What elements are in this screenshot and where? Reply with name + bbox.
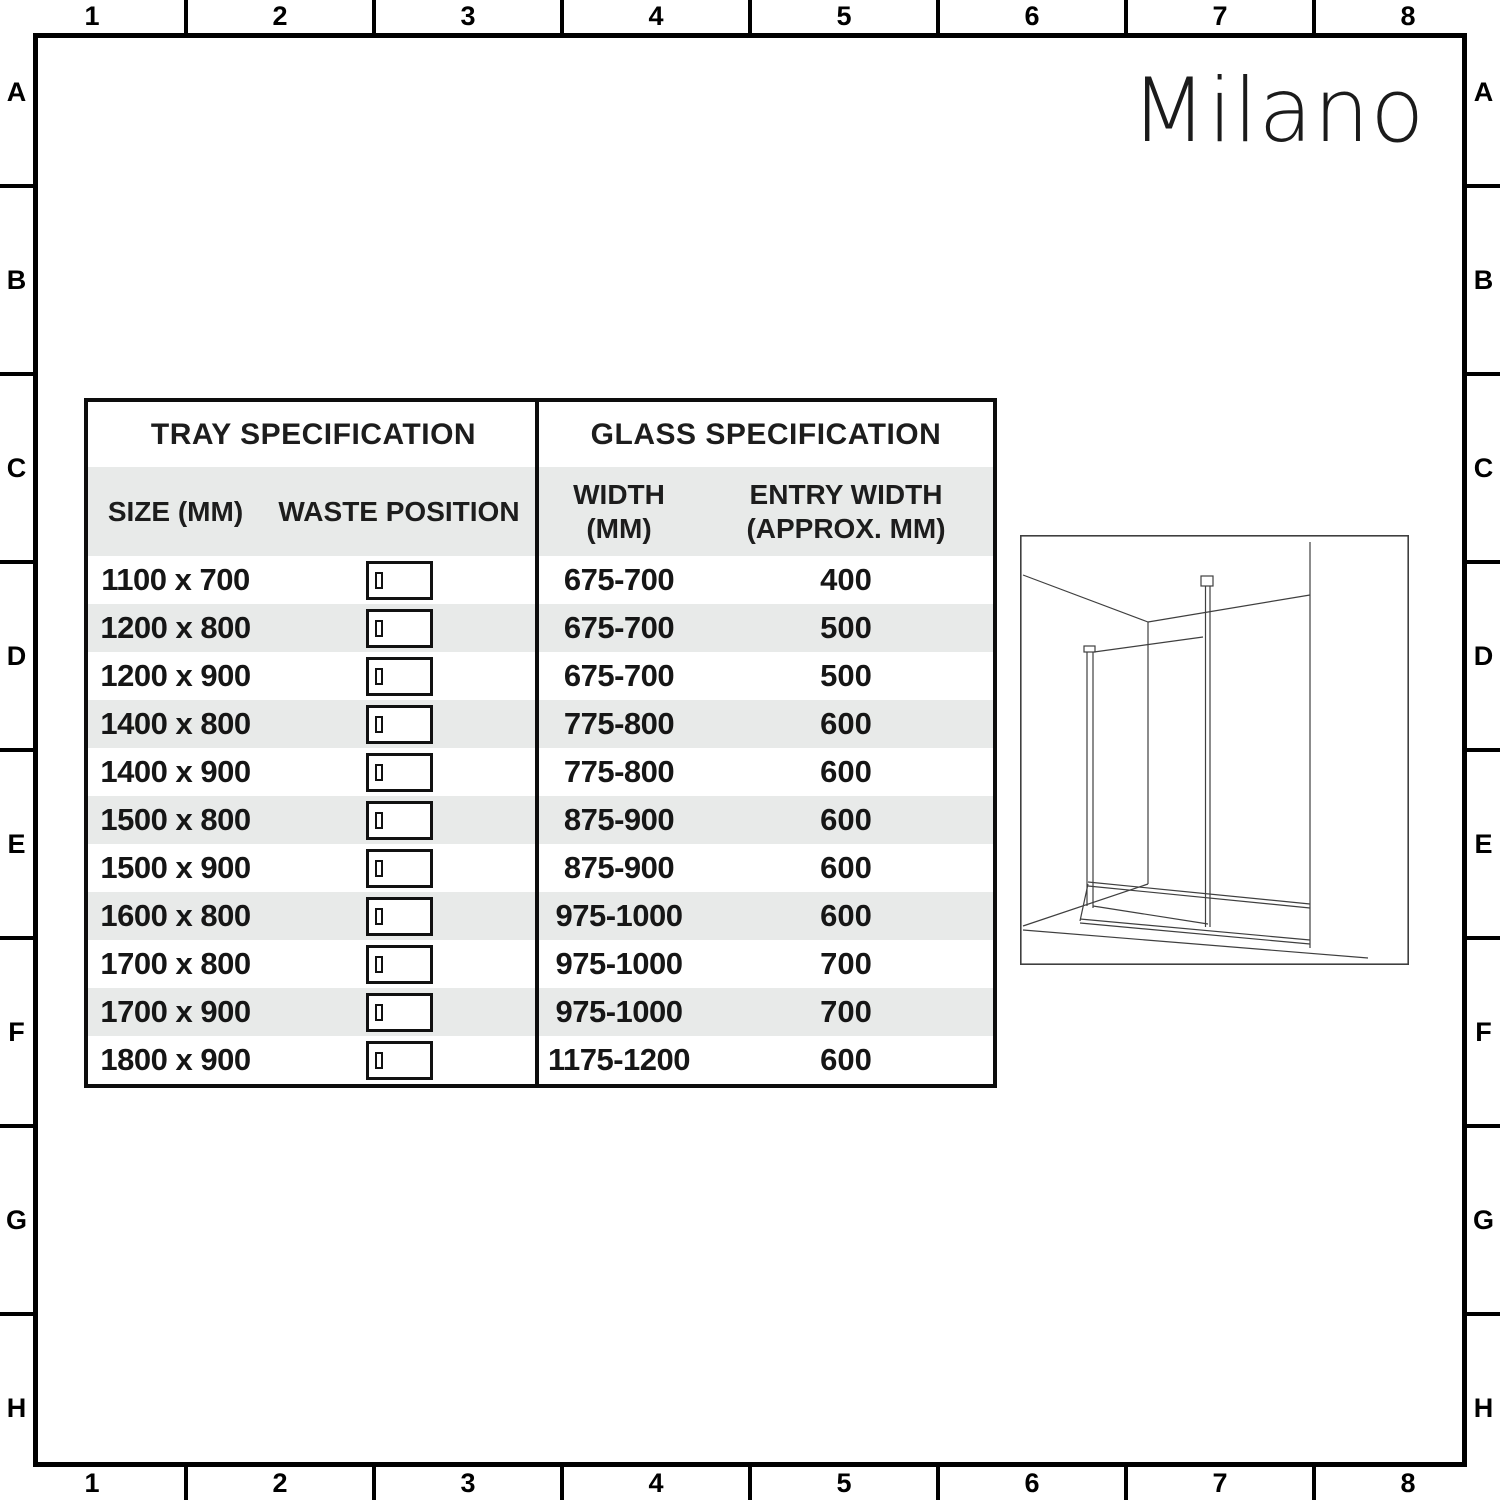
tray-size: 1500 x 900 [88, 850, 263, 886]
glass-width: 1175-1200 [539, 1042, 699, 1078]
waste-outlet-mark [375, 1004, 383, 1021]
entry-width-column-header: ENTRY WIDTH (APPROX. MM) [699, 467, 993, 556]
tray-size: 1800 x 900 [88, 1042, 263, 1078]
entry-width: 500 [699, 658, 993, 694]
grid-col-label: 2 [188, 1467, 376, 1500]
spec-sheet: 1 2 3 4 5 6 7 8 1 2 3 4 5 6 7 8 A B C D … [0, 0, 1500, 1500]
waste-outlet-mark [375, 620, 383, 637]
grid-ruler-left: A B C D E F G H [0, 0, 33, 1500]
entry-width: 600 [699, 802, 993, 838]
waste-outlet-mark [375, 764, 383, 781]
glass-frame-cap [1084, 646, 1095, 652]
table-divider [535, 402, 539, 1084]
table-row: 1400 x 900 775-800 600 [88, 748, 993, 796]
grid-row-label: C [1467, 376, 1500, 564]
glass-spec-title: GLASS SPECIFICATION [539, 402, 993, 467]
grid-col-label: 2 [188, 0, 376, 33]
table-row: 1700 x 800 975-1000 700 [88, 940, 993, 988]
table-row: 1200 x 900 675-700 500 [88, 652, 993, 700]
grid-col-label: 6 [940, 1467, 1128, 1500]
glass-width: 975-1000 [539, 946, 699, 982]
glass-width: 975-1000 [539, 898, 699, 934]
tray-top-front [1088, 886, 1310, 908]
table-row: 1600 x 800 975-1000 600 [88, 892, 993, 940]
waste-outlet-mark [375, 572, 383, 589]
glass-width: 875-900 [539, 802, 699, 838]
grid-row-label: E [0, 752, 33, 940]
support-bar-cap [1201, 576, 1213, 586]
glass-width: 975-1000 [539, 994, 699, 1030]
tray-size: 1500 x 800 [88, 802, 263, 838]
grid-col-label: 7 [1128, 1467, 1316, 1500]
entry-width: 700 [699, 994, 993, 1030]
entry-width: 600 [699, 1042, 993, 1078]
tray-size: 1600 x 800 [88, 898, 263, 934]
grid-col-label: 6 [940, 0, 1128, 33]
waste-position-icon [366, 705, 433, 744]
tray-size: 1700 x 900 [88, 994, 263, 1030]
waste-position-icon [366, 753, 433, 792]
waste-position-icon [366, 993, 433, 1032]
table-row: 1400 x 800 775-800 600 [88, 700, 993, 748]
grid-col-label: 7 [1128, 0, 1316, 33]
grid-row-label: C [0, 376, 33, 564]
glass-width: 675-700 [539, 562, 699, 598]
tray-size: 1400 x 900 [88, 754, 263, 790]
grid-col-label: 4 [564, 1467, 752, 1500]
tray-size: 1200 x 800 [88, 610, 263, 646]
grid-ruler-top: 1 2 3 4 5 6 7 8 [0, 0, 1500, 33]
floor-edge-front [1023, 930, 1368, 958]
waste-outlet-mark [375, 812, 383, 829]
grid-col-label: 5 [752, 0, 940, 33]
grid-row-label: G [0, 1128, 33, 1316]
entry-width: 400 [699, 562, 993, 598]
grid-col-label: 3 [376, 1467, 564, 1500]
glass-width: 875-900 [539, 850, 699, 886]
entry-width: 600 [699, 898, 993, 934]
entry-width: 600 [699, 850, 993, 886]
tray-front-bottom [1080, 923, 1310, 944]
tray-size: 1200 x 900 [88, 658, 263, 694]
tray-size: 1100 x 700 [88, 562, 263, 598]
grid-row-label: D [1467, 564, 1500, 752]
waste-outlet-mark [375, 956, 383, 973]
waste-outlet-mark [375, 860, 383, 877]
waste-position-icon [366, 945, 433, 984]
table-row: 1100 x 700 675-700 400 [88, 556, 993, 604]
ceiling-edge-left [1023, 575, 1148, 622]
entry-width: 600 [699, 754, 993, 790]
waste-outlet-mark [375, 1052, 383, 1069]
grid-row-label: A [1467, 0, 1500, 188]
entry-width: 600 [699, 706, 993, 742]
width-column-header: WIDTH (MM) [539, 467, 699, 556]
grid-row-label: A [0, 0, 33, 188]
entry-width: 500 [699, 610, 993, 646]
waste-outlet-mark [375, 908, 383, 925]
tray-spec-title: TRAY SPECIFICATION [88, 402, 539, 467]
grid-col-label: 4 [564, 0, 752, 33]
grid-row-label: H [1467, 1316, 1500, 1500]
table-row: 1800 x 900 1175-1200 600 [88, 1036, 993, 1084]
tray-size: 1700 x 800 [88, 946, 263, 982]
glass-width: 775-800 [539, 706, 699, 742]
waste-outlet-mark [375, 668, 383, 685]
waste-outlet-mark [375, 716, 383, 733]
waste-position-icon [366, 849, 433, 888]
table-row: 1500 x 800 875-900 600 [88, 796, 993, 844]
size-column-header: SIZE (MM) [88, 467, 263, 556]
grid-row-label: F [0, 940, 33, 1128]
grid-row-label: D [0, 564, 33, 752]
grid-row-label: B [0, 188, 33, 376]
table-row: 1200 x 800 675-700 500 [88, 604, 993, 652]
grid-row-label: G [1467, 1128, 1500, 1316]
table-row: 1700 x 900 975-1000 700 [88, 988, 993, 1036]
waste-position-icon [366, 657, 433, 696]
waste-position-icon [366, 801, 433, 840]
grid-ruler-bottom: 1 2 3 4 5 6 7 8 [0, 1467, 1500, 1500]
waste-position-icon [366, 561, 433, 600]
tray-size: 1400 x 800 [88, 706, 263, 742]
waste-column-header: WASTE POSITION [263, 467, 535, 556]
glass-width: 675-700 [539, 658, 699, 694]
shower-enclosure-diagram [1020, 535, 1409, 965]
grid-row-label: F [1467, 940, 1500, 1128]
entry-width: 700 [699, 946, 993, 982]
glass-width: 775-800 [539, 754, 699, 790]
grid-row-label: E [1467, 752, 1500, 940]
table-body: 1100 x 700 675-700 400 1200 x 800 675-70… [88, 556, 993, 1084]
grid-col-label: 5 [752, 1467, 940, 1500]
milano-logo: Milano [1108, 55, 1448, 165]
table-row: 1500 x 900 875-900 600 [88, 844, 993, 892]
waste-position-icon [366, 1041, 433, 1080]
specification-table: TRAY SPECIFICATION GLASS SPECIFICATION S… [84, 398, 997, 1088]
grid-row-label: H [0, 1316, 33, 1500]
grid-row-label: B [1467, 188, 1500, 376]
ceiling-edge-back [1148, 595, 1310, 622]
table-header-row: SIZE (MM) WASTE POSITION WIDTH (MM) ENTR… [88, 467, 993, 556]
grid-col-label: 3 [376, 0, 564, 33]
waste-position-icon [366, 897, 433, 936]
grid-ruler-right: A B C D E F G H [1467, 0, 1500, 1500]
glass-width: 675-700 [539, 610, 699, 646]
waste-position-icon [366, 609, 433, 648]
